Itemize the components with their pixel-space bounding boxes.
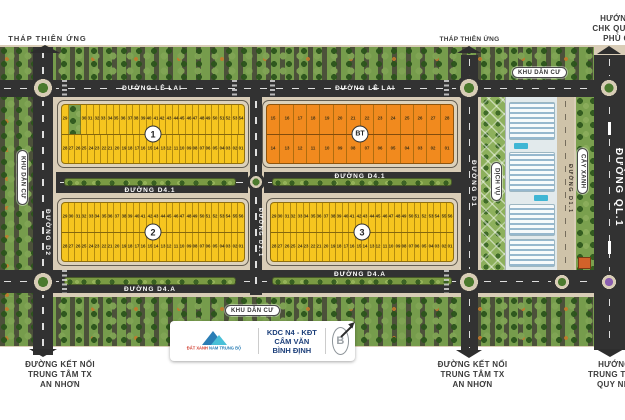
road-label-d41-right: ĐƯỜNG D4.1 — [300, 173, 420, 180]
thap-thien-ung-right: THÁP THIÊN ỨNG — [432, 36, 507, 43]
roundabout — [551, 271, 573, 293]
crosswalk — [62, 270, 67, 293]
direction-quy-nhon: HƯỚNG ĐI TRUNG TÂM TP QUY NHƠN — [560, 360, 625, 390]
project-info-card: ĐẤT XANH NAM TRUNG BỘ KDC N4 - KĐT CẨM V… — [170, 321, 355, 361]
logo-mountain-icon — [201, 330, 227, 345]
lot-BT-04: 04 — [401, 135, 414, 164]
roundabout — [456, 75, 482, 101]
lot-1-33: 33 — [100, 105, 107, 134]
lot-BT-24: 24 — [387, 105, 400, 134]
road-label-d1: ĐƯỜNG D1 — [462, 158, 477, 210]
lot-BT-10: 10 — [320, 135, 333, 164]
logo-text-blue: NAM TRUNG BỘ — [209, 347, 241, 351]
roundabout — [247, 173, 265, 191]
lot-1-01: 01 — [238, 135, 244, 164]
apartment-zone — [505, 97, 557, 270]
road-label-d4a-left: ĐƯỜNG D4.A — [90, 286, 210, 293]
lot-BT-18: 18 — [307, 105, 320, 134]
lot-BT-05: 05 — [387, 135, 400, 164]
median-d4a-left — [64, 277, 236, 285]
lot-BT-23: 23 — [374, 105, 387, 134]
roundabout — [597, 76, 621, 100]
block-badge-2: 2 — [145, 224, 162, 241]
median-d41-left — [64, 178, 236, 186]
divider — [325, 328, 326, 354]
lane-dash — [608, 241, 611, 254]
lot-BT-20: 20 — [334, 105, 347, 134]
apartment-building — [509, 239, 555, 267]
road-label-d11: ĐƯỜNG D1.1 — [558, 158, 573, 220]
direction-phu-cat: HƯỚNG ĐI CHK QUỐC TẾ PHÙ CÁT — [552, 14, 625, 44]
lot-BT-16: 16 — [280, 105, 293, 134]
direction-an-nhon-mid: ĐƯỜNG KẾT NỐI TRUNG TÂM TX AN NHƠN — [410, 360, 535, 390]
roundabout — [456, 269, 482, 295]
lot-1-37: 37 — [127, 105, 134, 134]
road-label-d41-left: ĐƯỜNG D4.1 — [90, 187, 210, 194]
khu-dan-cu-pill-top: KHU DÂN CƯ — [512, 67, 567, 78]
lot-BT-15: 15 — [267, 105, 280, 134]
lot-BT-17: 17 — [294, 105, 307, 134]
crosswalk — [270, 80, 275, 97]
lot-2-01: 01 — [238, 233, 244, 262]
lot-1-42: 42 — [160, 105, 167, 134]
block-bt: 1516171819202122232425262728141312111009… — [262, 100, 458, 168]
residential-band-top — [0, 47, 594, 80]
arrow-up-icon — [457, 46, 481, 53]
crosswalk — [444, 80, 449, 97]
crosswalk — [62, 80, 67, 97]
block-badge-1: 1 — [145, 126, 162, 143]
arrow-up-icon — [597, 46, 621, 54]
arrow-down-icon — [596, 349, 624, 357]
lot-BT-14: 14 — [267, 135, 280, 164]
lot-1-54: 54 — [239, 105, 245, 134]
pool — [534, 195, 548, 201]
lot-BT-25: 25 — [401, 105, 414, 134]
lot-1-51: 51 — [219, 105, 226, 134]
lot-1-30: 30 — [81, 105, 88, 134]
pool — [514, 143, 528, 149]
lot-1-46: 46 — [186, 105, 193, 134]
lot-1-32: 32 — [94, 105, 101, 134]
lot-BT-11: 11 — [307, 135, 320, 164]
lot-2-56: 56 — [238, 203, 244, 232]
road-label-d21: ĐƯỜNG D2.1 — [249, 203, 263, 263]
lot-BT-26: 26 — [414, 105, 427, 134]
lot-1-36: 36 — [120, 105, 127, 134]
dich-vu-pill: DỊCH VỤ — [491, 162, 502, 201]
direction-an-nhon-left: ĐƯỜNG KẾT NỐI TRUNG TÂM TX AN NHƠN — [0, 360, 120, 390]
road-label-ql1: ĐƯỜNG QL.1 — [596, 138, 624, 238]
road-label-le-lai: ĐƯỜNG LÊ LAI — [92, 85, 212, 92]
lot-BT-02: 02 — [427, 135, 440, 164]
apartment-building — [509, 102, 555, 140]
thap-thien-ung-left: THÁP THIÊN ỨNG — [0, 34, 95, 43]
lot-BT-09: 09 — [334, 135, 347, 164]
utility-plot — [578, 257, 591, 269]
lot-1-50: 50 — [212, 105, 219, 134]
logo-text-red: ĐẤT XANH — [187, 347, 208, 351]
apartment-building — [509, 152, 555, 192]
lot-BT-27: 27 — [427, 105, 440, 134]
block-2: 2930313233343536373839404142434445464748… — [57, 198, 249, 266]
arrow-up-icon — [30, 45, 60, 53]
arrow-down-icon — [29, 349, 57, 357]
lot-1-38: 38 — [133, 105, 140, 134]
green-strip — [69, 105, 81, 134]
divider — [258, 328, 259, 354]
lot-1-43: 43 — [166, 105, 173, 134]
lot-1-52: 52 — [225, 105, 232, 134]
lot-BT-12: 12 — [294, 135, 307, 164]
compass-needle — [340, 325, 353, 338]
lot-1-35: 35 — [114, 105, 121, 134]
lot-BT-01: 01 — [441, 135, 453, 164]
crosswalk — [444, 270, 449, 293]
khu-dan-cu-pill-left: KHU DÂN CƯ — [17, 150, 28, 205]
compass-north-icon: B — [332, 327, 349, 355]
lot-1-49: 49 — [206, 105, 213, 134]
road-label-d4a-right: ĐƯỜNG D4.A — [300, 271, 420, 278]
lot-BT-19: 19 — [320, 105, 333, 134]
roundabout — [30, 75, 56, 101]
lot-1-31: 31 — [87, 105, 94, 134]
arrow-down-icon — [456, 350, 482, 358]
lot-BT-03: 03 — [414, 135, 427, 164]
road-d21 — [250, 97, 262, 295]
lot-3-56: 56 — [447, 203, 453, 232]
block-3: 2930313233343536373839404142434445464748… — [266, 198, 458, 266]
lot-1-29: 29 — [62, 105, 69, 134]
lot-BT-13: 13 — [280, 135, 293, 164]
lot-1-47: 47 — [193, 105, 200, 134]
block-badge-BT: BT — [352, 126, 369, 143]
project-title: KDC N4 - KĐT CẨM VĂN BÌNH ĐỊNH — [265, 328, 319, 355]
cay-xanh-pill: CÂY XANH — [577, 148, 588, 194]
lot-BT-28: 28 — [441, 105, 453, 134]
lot-BT-06: 06 — [374, 135, 387, 164]
crosswalk — [232, 80, 237, 97]
master-plan-map: ĐƯỜNG LÊ LAI ĐƯỜNG LÊ LAI ĐƯỜNG D4.1 ĐƯỜ… — [0, 0, 625, 420]
roundabout — [30, 269, 56, 295]
lot-3-01: 01 — [447, 233, 453, 262]
block-1: 2930313233343536373839404142434445464748… — [57, 100, 249, 168]
road-label-le-lai-2: ĐƯỜNG LÊ LAI — [305, 85, 425, 92]
road-label-d2: ĐƯỜNG D2 — [35, 205, 51, 260]
khu-dan-cu-pill-bottom: KHU DÂN CƯ — [225, 305, 280, 316]
lot-1-44: 44 — [173, 105, 180, 134]
lane-dash — [608, 122, 611, 135]
median-d4a-right — [272, 277, 452, 285]
block-badge-3: 3 — [354, 224, 371, 241]
apartment-building — [509, 204, 555, 236]
dat-xanh-logo: ĐẤT XANH NAM TRUNG BỘ — [176, 330, 252, 352]
roundabout-flower — [598, 271, 620, 293]
lot-1-45: 45 — [179, 105, 186, 134]
